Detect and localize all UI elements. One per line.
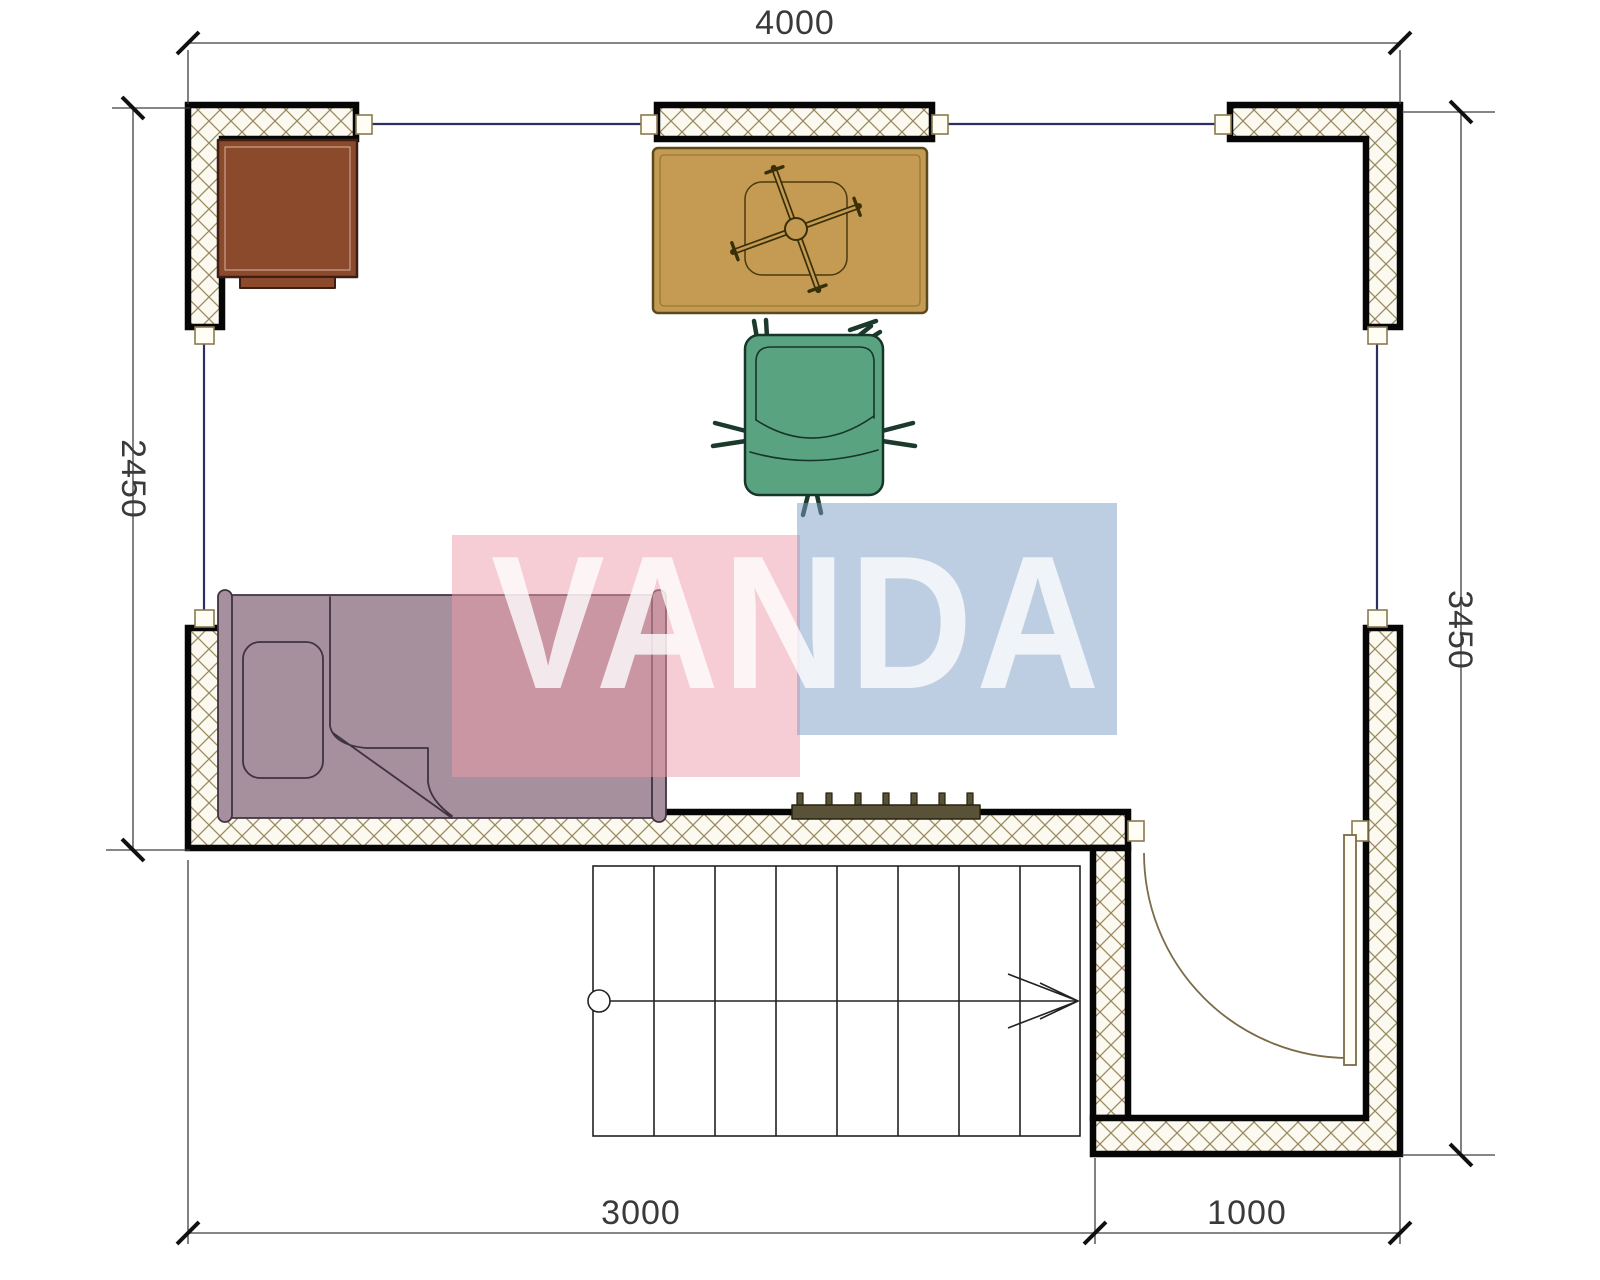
chair-body [745, 335, 883, 495]
desk-top [218, 140, 357, 277]
radiator-body [792, 805, 980, 819]
dimension-bottom: 3000 1000 [177, 860, 1411, 1244]
desk-drawer [240, 277, 335, 288]
desk [218, 140, 357, 288]
table [653, 145, 927, 313]
office-chair [713, 320, 915, 515]
stair-walk-start-circle [588, 990, 610, 1012]
window-jamb [1368, 610, 1387, 627]
dimension-left: 2450 [106, 97, 190, 861]
dimension-left-value: 2450 [114, 439, 152, 519]
door-leaf [1344, 835, 1356, 1065]
floor-plan-drawing: 4000 2450 3450 300 [0, 0, 1600, 1280]
window-jamb [1215, 115, 1231, 134]
entry-door [1128, 821, 1368, 1065]
dimension-bottom-right-value: 1000 [1207, 1194, 1287, 1232]
door-jamb [1128, 821, 1144, 841]
wall-vestibule-left [1093, 848, 1128, 1118]
bed-headboard [218, 590, 232, 822]
window-jamb [195, 327, 214, 344]
wall-top-right-L [1230, 105, 1400, 327]
dimension-right: 3450 [1402, 101, 1495, 1166]
dimension-top: 4000 [177, 4, 1411, 104]
window-jamb [356, 115, 372, 134]
window-jamb [195, 610, 214, 627]
wall-top-center [657, 105, 932, 139]
watermark-text: VANDA [491, 517, 1103, 729]
floor-plan-page: 4000 2450 3450 300 [0, 0, 1600, 1280]
dimension-top-value: 4000 [755, 4, 835, 42]
radiator [792, 793, 980, 819]
door-swing-arc [1144, 853, 1349, 1058]
dimension-bottom-left-value: 3000 [601, 1194, 681, 1232]
watermark: VANDA [452, 503, 1117, 777]
dimension-right-value: 3450 [1441, 590, 1479, 670]
staircase [588, 866, 1080, 1136]
window-jamb [932, 115, 948, 134]
window-jamb [1368, 327, 1387, 344]
window-jamb [641, 115, 657, 134]
radiator-fins [797, 793, 973, 806]
